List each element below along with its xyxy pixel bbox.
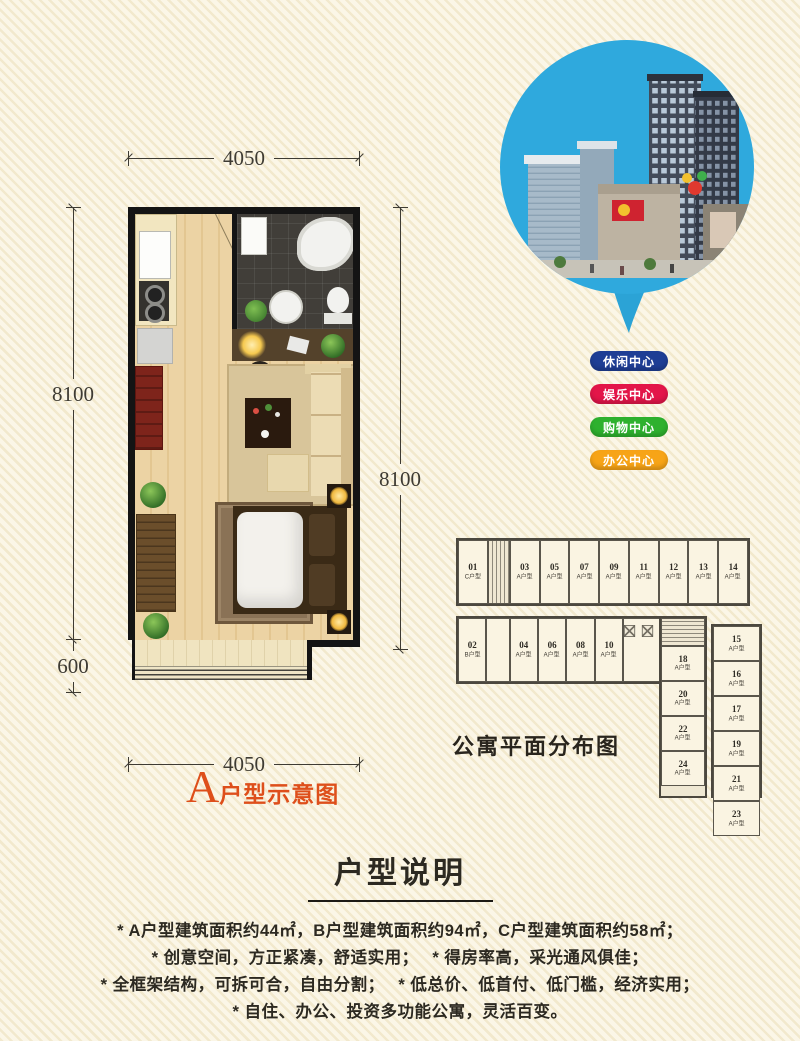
- unit-number: 19: [732, 739, 741, 750]
- dimension-top-value: 4050: [214, 148, 274, 169]
- dimension-right-value: 8100: [379, 464, 421, 495]
- podium-roof: [577, 141, 617, 149]
- toilet-tank: [324, 313, 352, 324]
- stove: [139, 281, 169, 321]
- balcony-railing: [135, 666, 307, 680]
- bed: [233, 506, 347, 614]
- note-line: * 全框架结构，可拆可合，自由分割； * 低总价、低首付、低门槛，经济实用；: [0, 972, 800, 999]
- unit-09: 09A户型: [599, 540, 629, 604]
- unit-type: A户型: [606, 574, 622, 581]
- unit-number: 22: [679, 724, 688, 735]
- note-line: * A户型建筑面积约44㎡，B户型建筑面积约94㎡，C户型建筑面积约58㎡；: [0, 918, 800, 945]
- unit-number: 04: [519, 640, 528, 651]
- unit-number: 24: [679, 759, 688, 770]
- billboard-beige: [710, 212, 736, 248]
- unit-11: 11A户型: [629, 540, 659, 604]
- unit-type: A户型: [601, 652, 617, 659]
- unit-06: 06A户型: [538, 618, 566, 682]
- unit-number: 05: [550, 562, 559, 573]
- unit-23: 23A户型: [713, 801, 760, 836]
- title-underline: [308, 900, 493, 902]
- pillow: [309, 564, 335, 606]
- unit-number: 02: [468, 640, 477, 651]
- unit-number: 08: [576, 640, 585, 651]
- unit-number: 21: [732, 774, 741, 785]
- tv-cabinet: [135, 366, 163, 450]
- flyer-background: 4050 8100 600 8100 4050: [0, 0, 800, 1041]
- flower: [265, 404, 272, 411]
- laptop: [287, 336, 310, 354]
- badge-3: 购物中心: [590, 417, 668, 437]
- unit-number: 09: [610, 562, 619, 573]
- tower-cap: [647, 74, 703, 81]
- unit-type: C户型: [465, 574, 481, 581]
- unit-number: 11: [640, 562, 649, 573]
- unit-17: 17A户型: [713, 696, 760, 731]
- unit-type: A户型: [636, 574, 652, 581]
- unit-type: A户型: [675, 666, 691, 673]
- unit-12: 12A户型: [659, 540, 689, 604]
- building-col-inner: 18A户型20A户型22A户型24A户型: [659, 616, 707, 798]
- unit-type: A户型: [516, 652, 532, 659]
- burner: [145, 303, 165, 323]
- dim-line: [129, 158, 214, 159]
- hall: [486, 618, 509, 682]
- wall-right: [353, 207, 360, 647]
- coffee-table: [245, 398, 291, 448]
- tree: [727, 253, 741, 267]
- tick: [66, 207, 81, 208]
- unit-16: 16A户型: [713, 661, 760, 696]
- pedestrian: [670, 264, 674, 273]
- plant: [245, 300, 267, 322]
- dimension-left-value: 8100: [52, 379, 94, 410]
- unit-21: 21A户型: [713, 766, 760, 801]
- unit-01: 01C户型: [458, 540, 488, 604]
- lamp-glow: [330, 613, 348, 631]
- notes-section: 户型说明 * A户型建筑面积约44㎡，B户型建筑面积约94㎡，C户型建筑面积约5…: [0, 848, 800, 1026]
- podium-roof: [524, 155, 586, 164]
- tick: [359, 757, 360, 772]
- desk-lamp-glow: [238, 331, 266, 359]
- dresser: [136, 514, 176, 612]
- building-plan-caption: 公寓平面分布图: [452, 729, 620, 761]
- tick: [66, 692, 81, 693]
- badge-1: 休闲中心: [590, 351, 668, 371]
- unit-type: A户型: [728, 786, 744, 793]
- unit-type: A户型: [728, 821, 744, 828]
- dim-line: [274, 158, 359, 159]
- unit-15: 15A户型: [713, 626, 760, 661]
- badge-4: 办公中心: [590, 450, 668, 470]
- flower: [253, 408, 259, 414]
- unit-08: 08A户型: [566, 618, 594, 682]
- tree: [554, 256, 566, 268]
- unit-13: 13A户型: [688, 540, 718, 604]
- unit-type: A户型: [576, 574, 592, 581]
- bath-shelf: [241, 217, 267, 255]
- stairwell: [661, 618, 705, 646]
- dim-line: [73, 641, 74, 651]
- unit-type: A户型: [728, 646, 744, 653]
- lamp-glow: [330, 487, 348, 505]
- plan-title-text: 户型示意图: [219, 775, 339, 809]
- unit-type: A户型: [675, 771, 691, 778]
- balcony-floor: [135, 640, 307, 666]
- unit-number: 15: [732, 634, 741, 645]
- balloon: [697, 171, 707, 181]
- unit-19: 19A户型: [713, 731, 760, 766]
- dim-line: [73, 682, 74, 692]
- dim-line: [400, 208, 401, 464]
- mall-block: [598, 184, 680, 264]
- plaza-ground: [498, 260, 760, 278]
- tick: [359, 151, 360, 166]
- plant: [140, 482, 166, 508]
- tick: [66, 639, 81, 640]
- tick: [393, 649, 408, 650]
- badge-2: 娱乐中心: [590, 384, 668, 404]
- dim-line: [73, 410, 74, 639]
- wall-top: [128, 207, 360, 214]
- pedestrian: [620, 266, 624, 275]
- unit-number: 16: [732, 669, 741, 680]
- unit-10: 10A户型: [595, 618, 623, 682]
- unit-type: A户型: [675, 701, 691, 708]
- dim-line: [73, 208, 74, 379]
- tower-cap: [693, 91, 741, 97]
- wall-balcony-right: [307, 640, 312, 680]
- unit-type: A户型: [666, 574, 682, 581]
- unit-type: A户型: [725, 574, 741, 581]
- pedestrian: [590, 264, 594, 273]
- unit-20: 20A户型: [661, 681, 705, 716]
- washing-machine: [137, 328, 173, 364]
- notes-title: 户型说明: [0, 848, 800, 892]
- bath-sink: [269, 290, 303, 324]
- podium-glass: [528, 164, 582, 264]
- location-bubble: [498, 36, 760, 338]
- unit-type: A户型: [546, 574, 562, 581]
- tick: [128, 151, 129, 166]
- unit-number: 18: [679, 654, 688, 665]
- tree: [644, 258, 656, 270]
- unit-type: A户型: [728, 751, 744, 758]
- dimension-left-600: 600: [65, 641, 81, 693]
- wood-floor: [135, 214, 353, 640]
- dimension-top: 4050: [128, 150, 360, 166]
- elevator-icon: [624, 625, 635, 637]
- dimension-right: 8100: [392, 207, 408, 650]
- facility-badges: 休闲中心娱乐中心购物中心办公中心: [590, 351, 668, 470]
- flower: [275, 412, 280, 417]
- unit-number: 14: [729, 562, 738, 573]
- unit-number: 13: [699, 562, 708, 573]
- tick: [128, 757, 129, 772]
- unit-number: 20: [679, 689, 688, 700]
- balloon: [682, 173, 692, 183]
- stair: [488, 540, 510, 604]
- building-col-outer: 15A户型16A户型17A户型19A户型21A户型23A户型: [711, 624, 762, 798]
- unit-02: 02B户型: [458, 618, 486, 682]
- unit-number: 17: [732, 704, 741, 715]
- pedestrian: [540, 265, 544, 274]
- unit-24: 24A户型: [661, 751, 705, 786]
- unit-type: A户型: [675, 736, 691, 743]
- unit-type: A户型: [728, 716, 744, 723]
- elevator-icon: [642, 625, 653, 637]
- unit-number: 03: [520, 562, 529, 573]
- unit-04: 04A户型: [510, 618, 538, 682]
- unit-type: A户型: [695, 574, 711, 581]
- unit-22: 22A户型: [661, 716, 705, 751]
- unit-05: 05A户型: [540, 540, 570, 604]
- toilet: [327, 287, 349, 313]
- unit-number: 23: [732, 809, 741, 820]
- duvet: [237, 512, 303, 608]
- unit-type: B户型: [464, 652, 480, 659]
- dimension-left-8100: 8100: [65, 207, 81, 640]
- plant: [321, 334, 345, 358]
- sofa-back: [341, 368, 353, 500]
- unit-number: 01: [468, 562, 477, 573]
- building-wing-top: 01C户型03A户型05A户型07A户型09A户型11A户型12A户型13A户型…: [456, 538, 750, 606]
- plan-title: A户型示意图: [186, 764, 339, 810]
- unit-03: 03A户型: [510, 540, 540, 604]
- balloon: [688, 181, 702, 195]
- dimension-left-small-value: 600: [57, 651, 89, 682]
- cup: [261, 430, 269, 438]
- unit-type: A户型: [728, 681, 744, 688]
- unit-type: A户型: [573, 652, 589, 659]
- unit-number: 12: [669, 562, 678, 573]
- mall-fascia: [598, 184, 680, 194]
- unit-number: 07: [580, 562, 589, 573]
- bathtub: [297, 217, 355, 271]
- unit-number: 10: [604, 640, 613, 651]
- sofa: [311, 372, 341, 496]
- floor-plan: [128, 207, 360, 687]
- nightstand: [327, 484, 351, 508]
- unit-type: A户型: [517, 574, 533, 581]
- unit-07: 07A户型: [569, 540, 599, 604]
- bathroom: [232, 214, 358, 334]
- dim-line: [400, 495, 401, 649]
- note-line: * 创意空间，方正紧凑，舒适实用； * 得房率高，采光通风俱佳；: [0, 945, 800, 972]
- unit-number: 06: [548, 640, 557, 651]
- wall-balcony-left: [132, 640, 135, 680]
- pillow: [309, 514, 335, 556]
- burner: [145, 285, 165, 305]
- plan-title-letter: A: [186, 764, 219, 810]
- ottoman: [267, 454, 309, 492]
- wall-left: [128, 207, 135, 640]
- unit-14: 14A户型: [718, 540, 748, 604]
- nightstand: [327, 610, 351, 634]
- note-line: * 自住、办公、投资多功能公寓，灵活百变。: [0, 999, 800, 1026]
- wall-bottom-right: [307, 640, 360, 647]
- plant: [143, 613, 169, 639]
- billboard-figure: [618, 204, 630, 216]
- tick: [393, 207, 408, 208]
- unit-type: A户型: [544, 652, 560, 659]
- fridge: [139, 231, 171, 279]
- unit-18: 18A户型: [661, 646, 705, 681]
